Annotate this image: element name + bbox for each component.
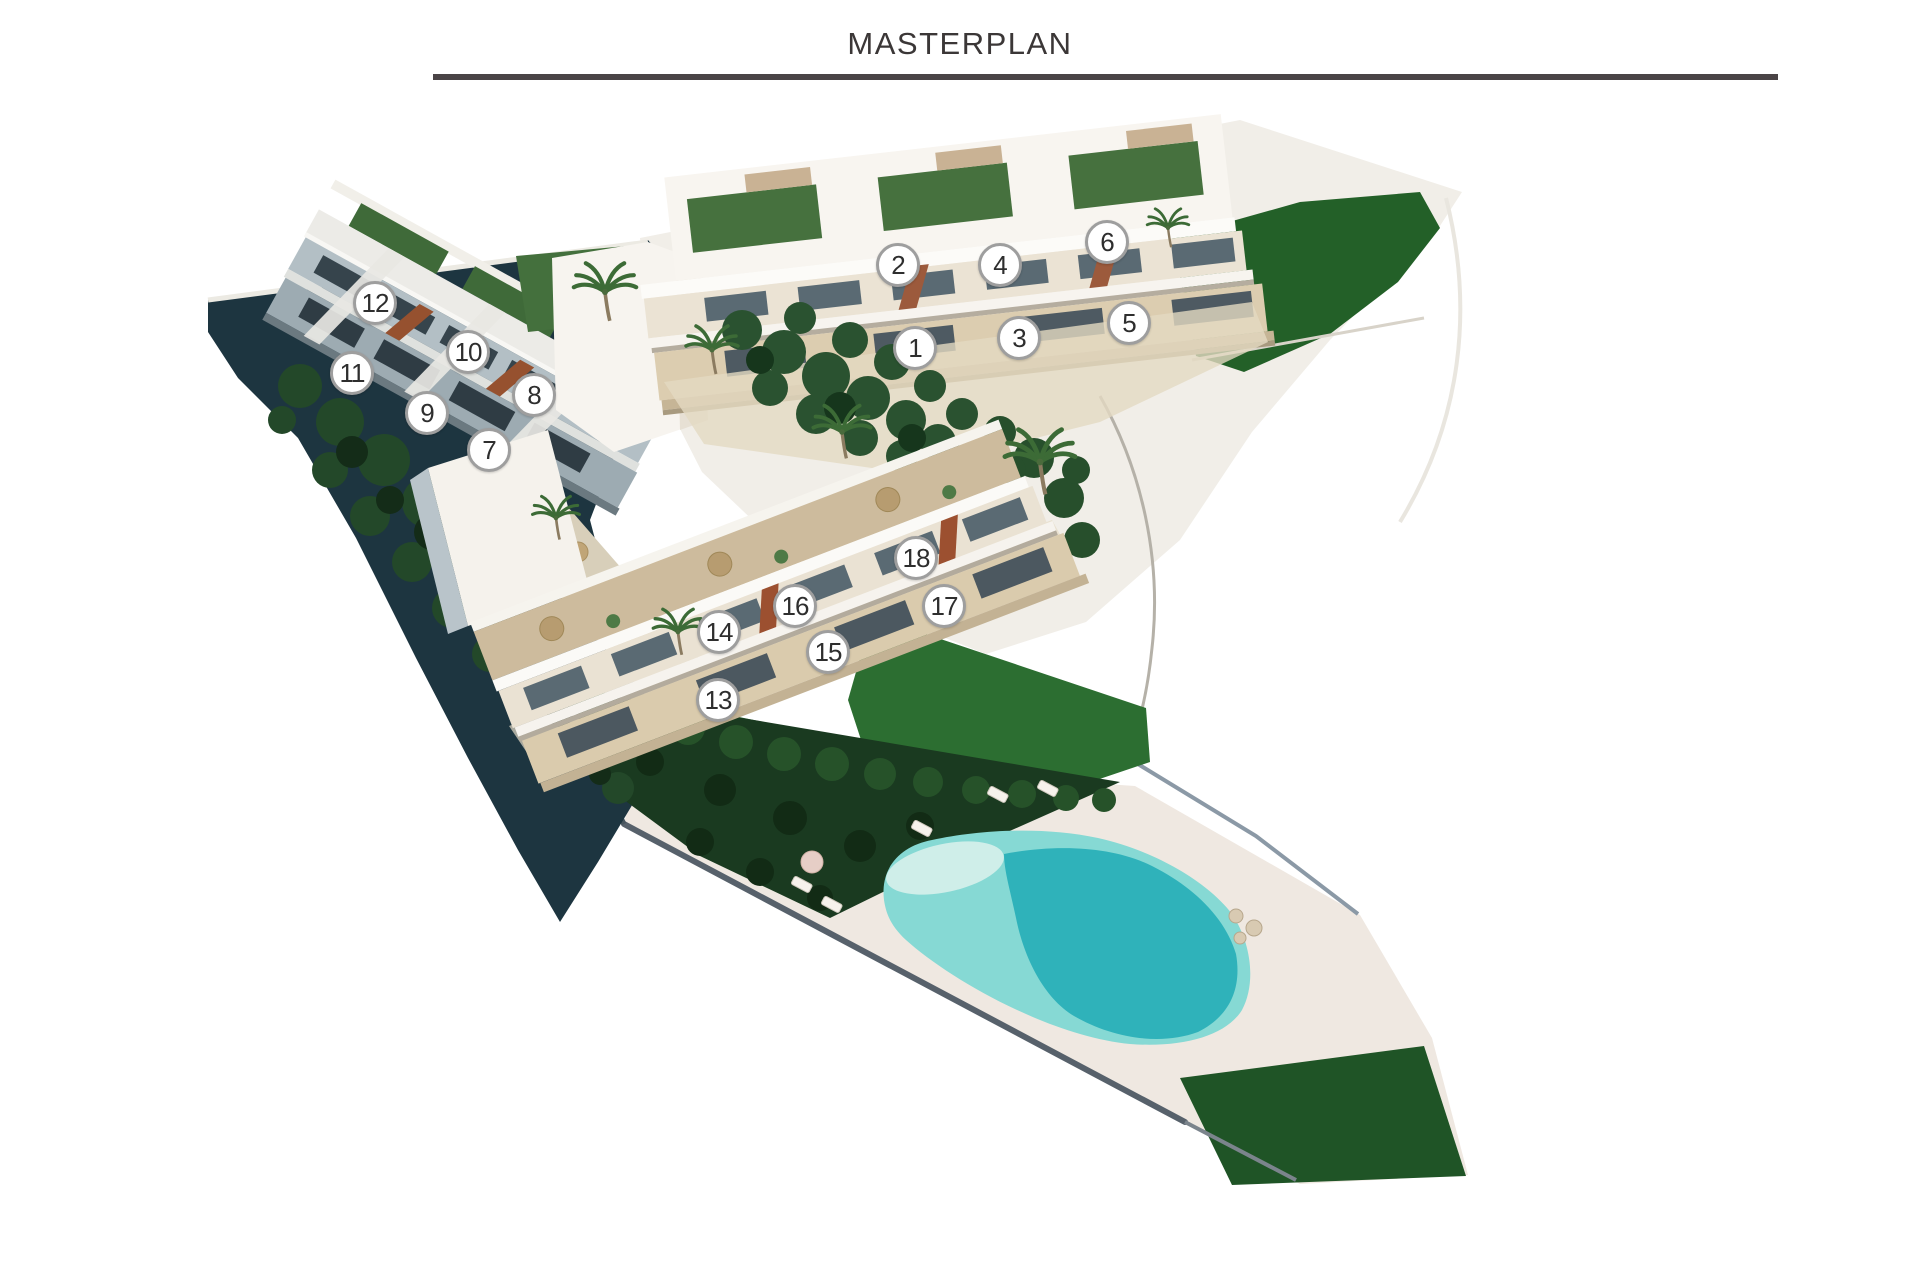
masterplan-page: MASTERPLAN [0, 0, 1920, 1280]
unit-marker-2[interactable]: 2 [876, 243, 920, 287]
unit-marker-13[interactable]: 13 [696, 678, 740, 722]
unit-marker-1[interactable]: 1 [893, 326, 937, 370]
unit-marker-12[interactable]: 12 [353, 281, 397, 325]
unit-marker-3[interactable]: 3 [997, 316, 1041, 360]
unit-marker-14[interactable]: 14 [697, 610, 741, 654]
unit-marker-11[interactable]: 11 [330, 351, 374, 395]
unit-marker-6[interactable]: 6 [1085, 220, 1129, 264]
unit-marker-5[interactable]: 5 [1107, 301, 1151, 345]
unit-marker-18[interactable]: 18 [894, 536, 938, 580]
unit-markers-layer: 123456789101112131415161718 [0, 0, 1920, 1280]
unit-marker-7[interactable]: 7 [467, 428, 511, 472]
unit-marker-15[interactable]: 15 [806, 630, 850, 674]
unit-marker-9[interactable]: 9 [405, 391, 449, 435]
unit-marker-16[interactable]: 16 [773, 584, 817, 628]
unit-marker-10[interactable]: 10 [446, 330, 490, 374]
unit-marker-4[interactable]: 4 [978, 243, 1022, 287]
unit-marker-17[interactable]: 17 [922, 584, 966, 628]
unit-marker-8[interactable]: 8 [512, 373, 556, 417]
